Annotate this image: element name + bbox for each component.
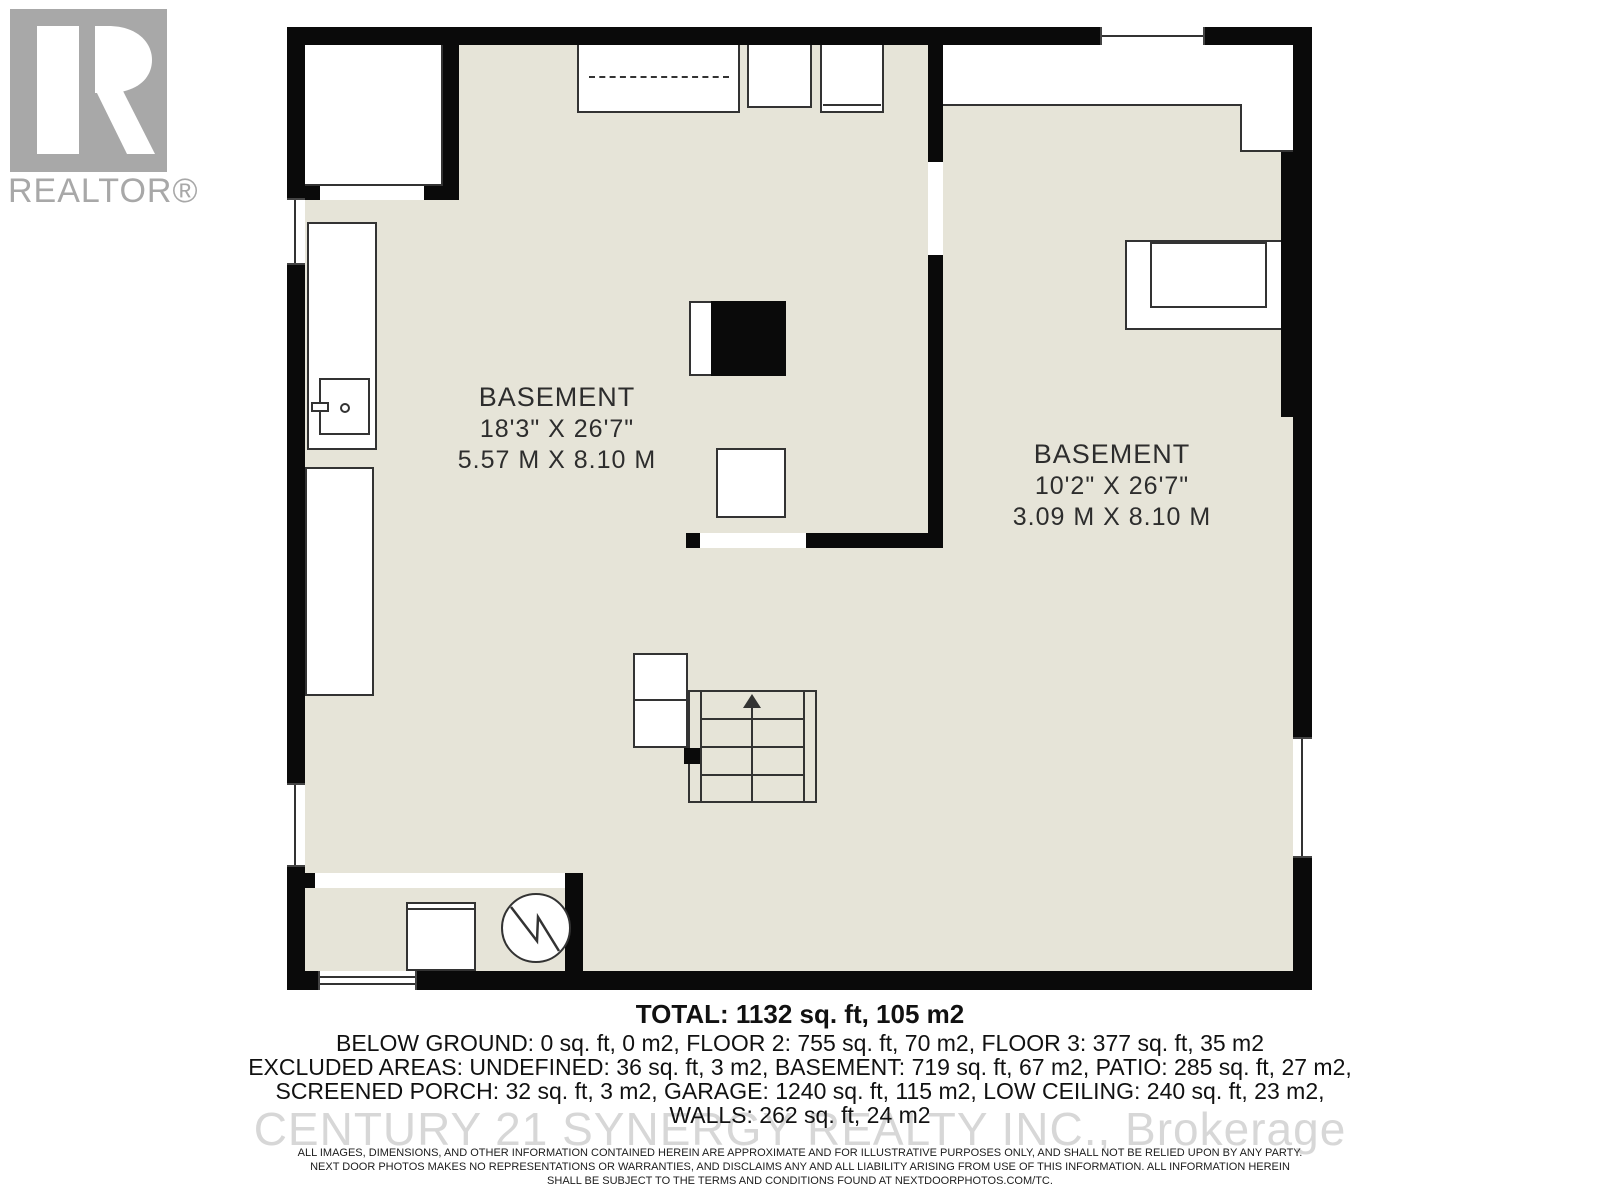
wall-divider-lower [928, 255, 943, 540]
closet-wall-nub-right [424, 186, 459, 200]
stair-direction-line [751, 708, 753, 801]
bed-unit-dashed-line [589, 76, 729, 78]
disclaimer-line-2: NEXT DOOR PHOTOS MAKES NO REPRESENTATION… [0, 1160, 1600, 1174]
room-left-metric: 5.57 M X 8.10 M [427, 445, 687, 476]
wall-right-thick-segment [1281, 152, 1312, 417]
window-left-upper-pane [294, 200, 296, 263]
closet-door-opening [320, 186, 424, 200]
washer-lid-line [408, 908, 474, 910]
window-left-lower-pane [294, 785, 296, 865]
summary-line-2: EXCLUDED AREAS: UNDEFINED: 36 sq. ft, 3 … [0, 1055, 1600, 1079]
window-bottom-pane-2 [320, 983, 415, 985]
wall-divider-upper [928, 45, 943, 162]
stair-rail-right [803, 692, 805, 801]
room-right-name: BASEMENT [977, 438, 1247, 471]
cabinet-a [747, 45, 812, 108]
window-bottom-pane-1 [320, 976, 415, 978]
realtor-logo-label: REALTOR® [8, 172, 208, 211]
staircase [688, 690, 817, 803]
window-right-pane [1301, 739, 1303, 856]
utility-wall-opening [315, 873, 565, 888]
wall-bottom [287, 971, 1312, 990]
divider-door-opening [928, 162, 943, 255]
room-label-left: BASEMENT 18'3" X 26'7" 5.57 M X 8.10 M [427, 381, 687, 476]
window-bottom [318, 971, 417, 990]
summary-line-4: WALLS: 262 sq. ft, 24 m2 [0, 1103, 1600, 1127]
stair-up-arrow-icon [743, 694, 761, 708]
utility-box [716, 448, 786, 518]
floor-plan: BASEMENT 18'3" X 26'7" 5.57 M X 8.10 M B… [0, 0, 1600, 1000]
furnace-panel [689, 301, 713, 376]
upper-landing-extension [1240, 104, 1293, 152]
window-left-lower [287, 783, 305, 867]
floorplan-page: REALTOR® [0, 0, 1600, 1200]
wall-interior-horizontal-nub [686, 533, 700, 548]
sink-faucet [311, 402, 329, 412]
stair-wall-nub [684, 748, 700, 764]
sofa-inner [1150, 242, 1267, 308]
disclaimer-line-3: SHALL BE SUBJECT TO THE TERMS AND CONDIT… [0, 1174, 1600, 1188]
storage-shelf [305, 467, 374, 696]
disclaimer-line-1: ALL IMAGES, DIMENSIONS, AND OTHER INFORM… [0, 1146, 1600, 1160]
window-top [1100, 27, 1205, 45]
stairs-landing-divider [635, 699, 686, 701]
interior-door-opening [700, 533, 806, 548]
cabinet-b [820, 45, 884, 113]
room-right-metric: 3.09 M X 8.10 M [977, 502, 1247, 533]
bed-unit [577, 45, 740, 113]
window-right [1293, 737, 1312, 858]
room-right-imperial: 10'2" X 26'7" [977, 471, 1247, 502]
room-label-right: BASEMENT 10'2" X 26'7" 3.09 M X 8.10 M [977, 438, 1247, 533]
washer [406, 902, 476, 971]
summary-line-1: BELOW GROUND: 0 sq. ft, 0 m2, FLOOR 2: 7… [0, 1031, 1600, 1055]
summary-total: TOTAL: 1132 sq. ft, 105 m2 [0, 1002, 1600, 1026]
wall-interior-horizontal [806, 533, 943, 548]
room-left-imperial: 18'3" X 26'7" [427, 414, 687, 445]
summary-line-3: SCREENED PORCH: 32 sq. ft, 3 m2, GARAGE:… [0, 1079, 1600, 1103]
cabinet-b-edge-line [823, 104, 881, 106]
window-top-pane [1102, 35, 1203, 37]
water-heater-zigzag-icon [503, 895, 569, 961]
closet-interior [305, 45, 443, 186]
sink-drain [340, 403, 350, 413]
closet-wall-right [443, 45, 459, 200]
room-left-name: BASEMENT [427, 381, 687, 414]
furnace [711, 301, 786, 376]
utility-wall-corner [565, 873, 583, 888]
upper-landing-area [943, 45, 1293, 106]
window-left-upper [287, 198, 305, 265]
water-heater [501, 893, 571, 963]
realtor-logo-icon [10, 9, 167, 172]
